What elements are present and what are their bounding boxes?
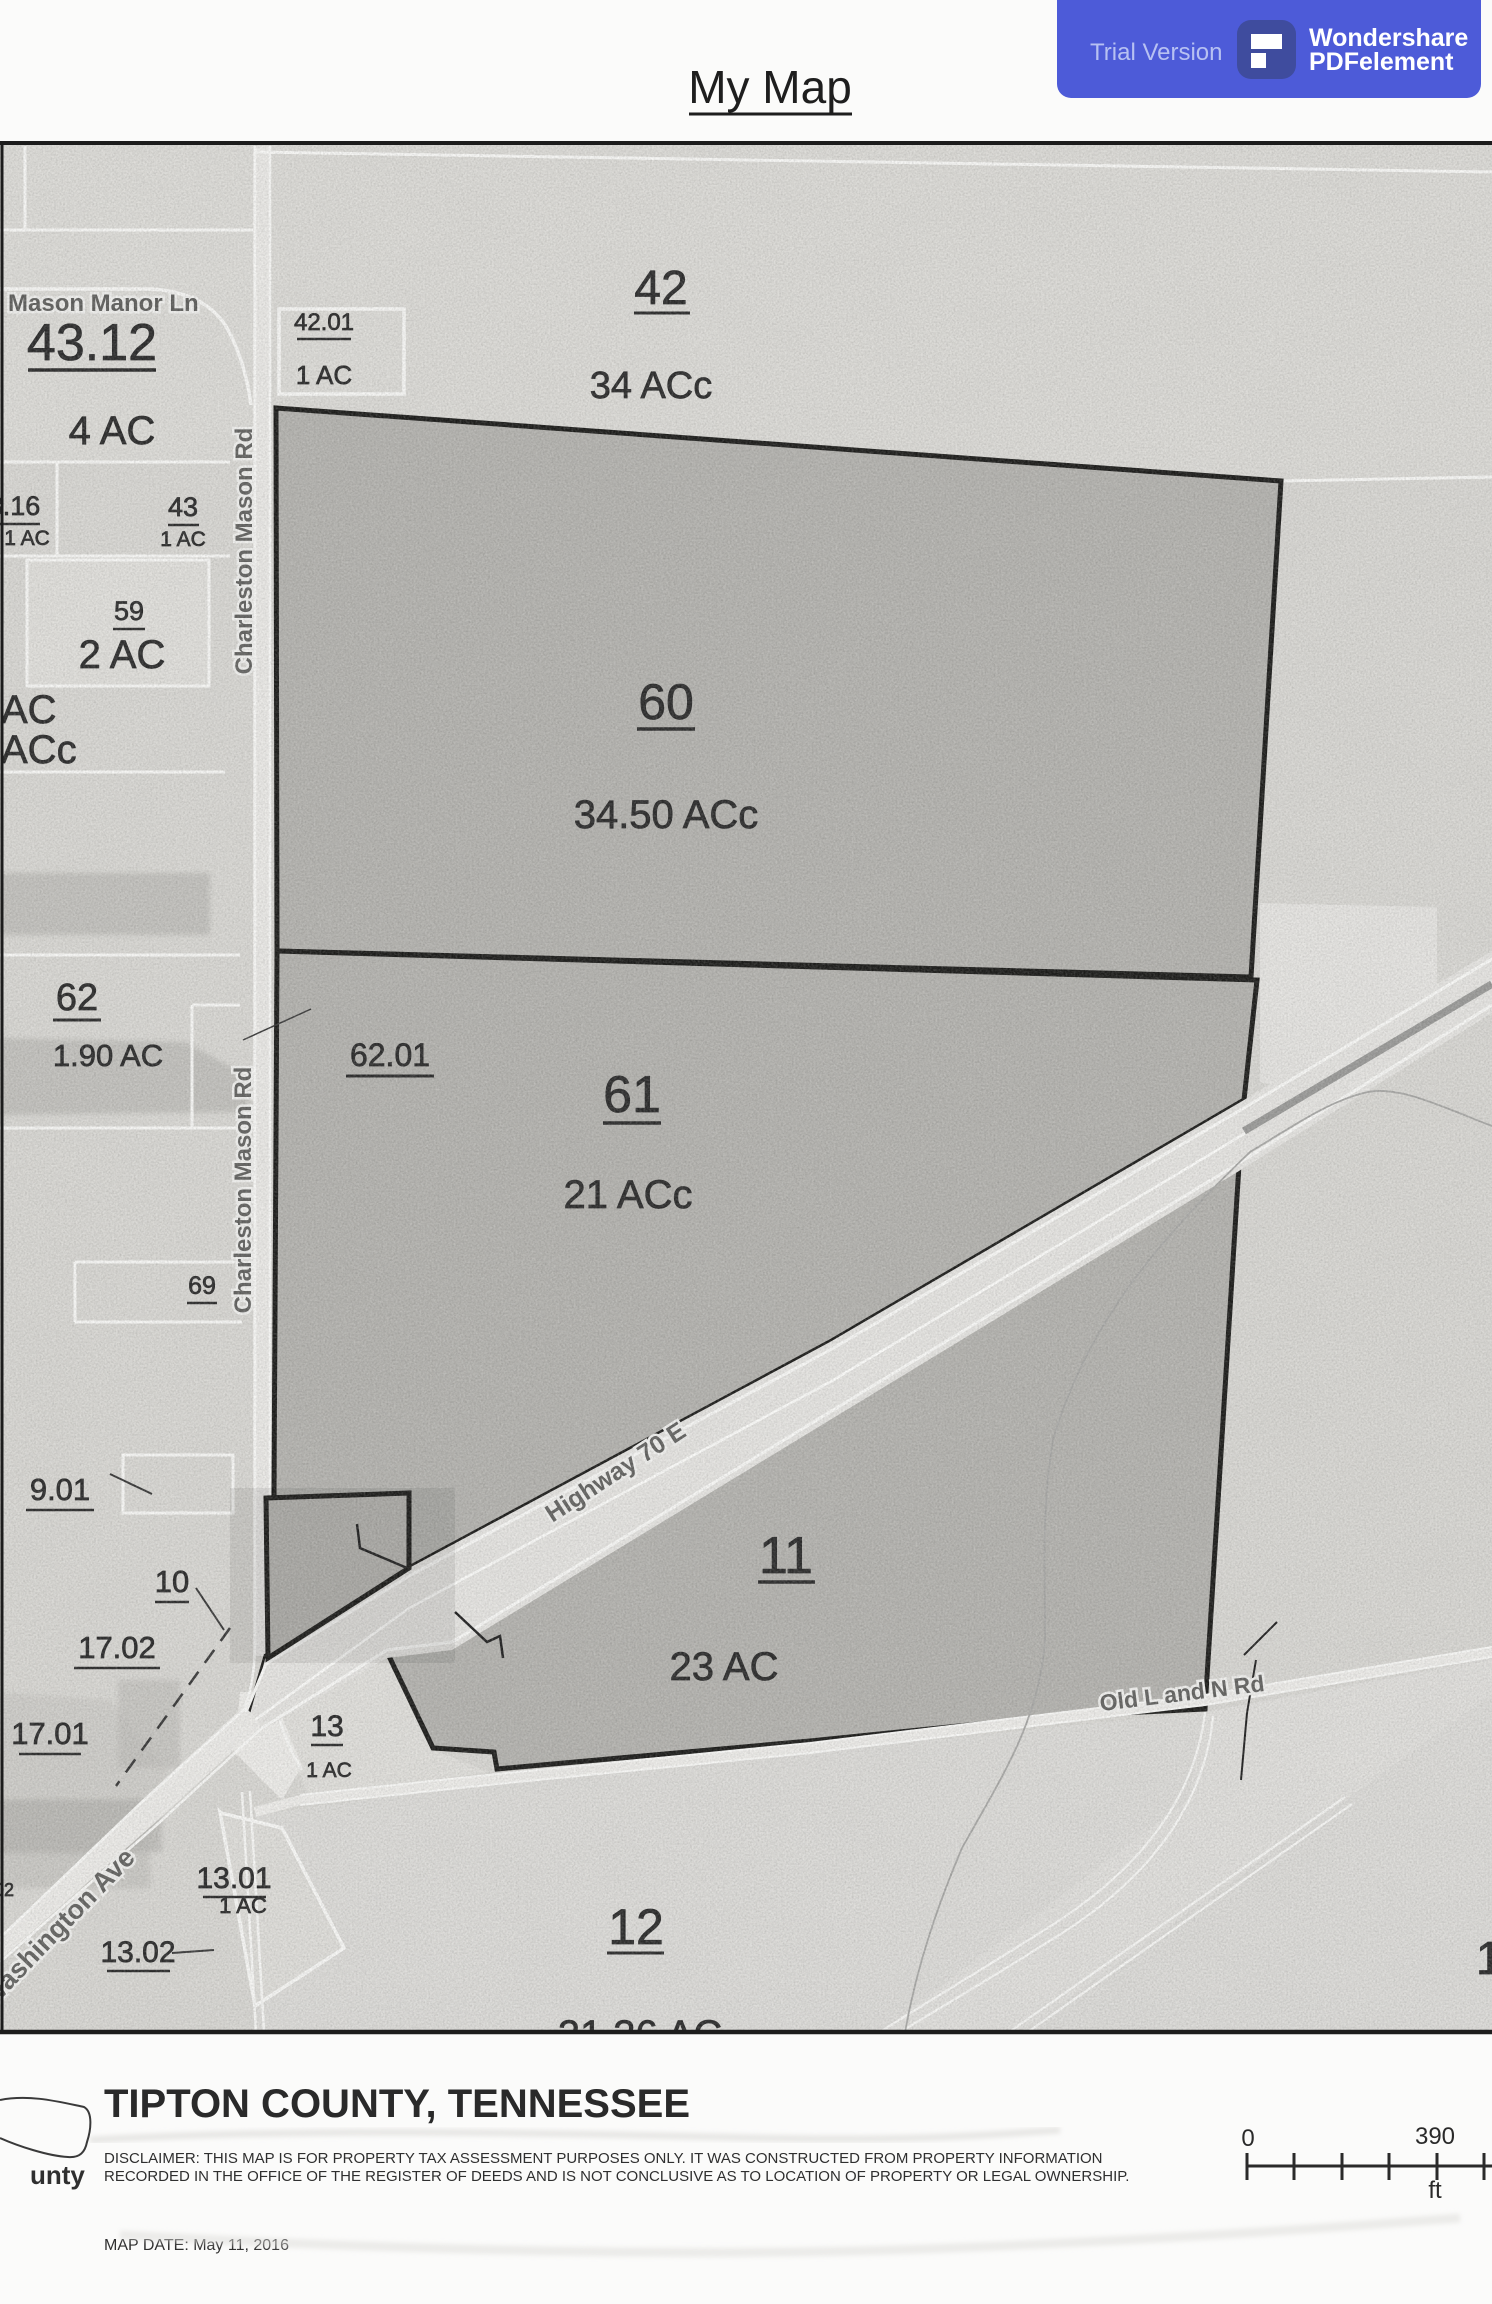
svg-text:0: 0: [1241, 2125, 1254, 2152]
svg-text:TIPTON COUNTY, TENNESSEE: TIPTON COUNTY, TENNESSEE: [104, 2082, 690, 2126]
svg-text:My Map: My Map: [688, 61, 852, 113]
svg-text:Trial Version: Trial Version: [1090, 39, 1223, 66]
svg-text:RECORDED IN THE OFFICE OF THE: RECORDED IN THE OFFICE OF THE REGISTER O…: [104, 2168, 1129, 2185]
svg-text:PDFelement: PDFelement: [1309, 48, 1454, 76]
svg-text:ft: ft: [1428, 2177, 1442, 2204]
svg-text:DISCLAIMER: THIS MAP IS FOR PR: DISCLAIMER: THIS MAP IS FOR PROPERTY TAX…: [104, 2150, 1103, 2167]
svg-text:unty: unty: [30, 2160, 85, 2190]
svg-text:390: 390: [1415, 2123, 1455, 2150]
